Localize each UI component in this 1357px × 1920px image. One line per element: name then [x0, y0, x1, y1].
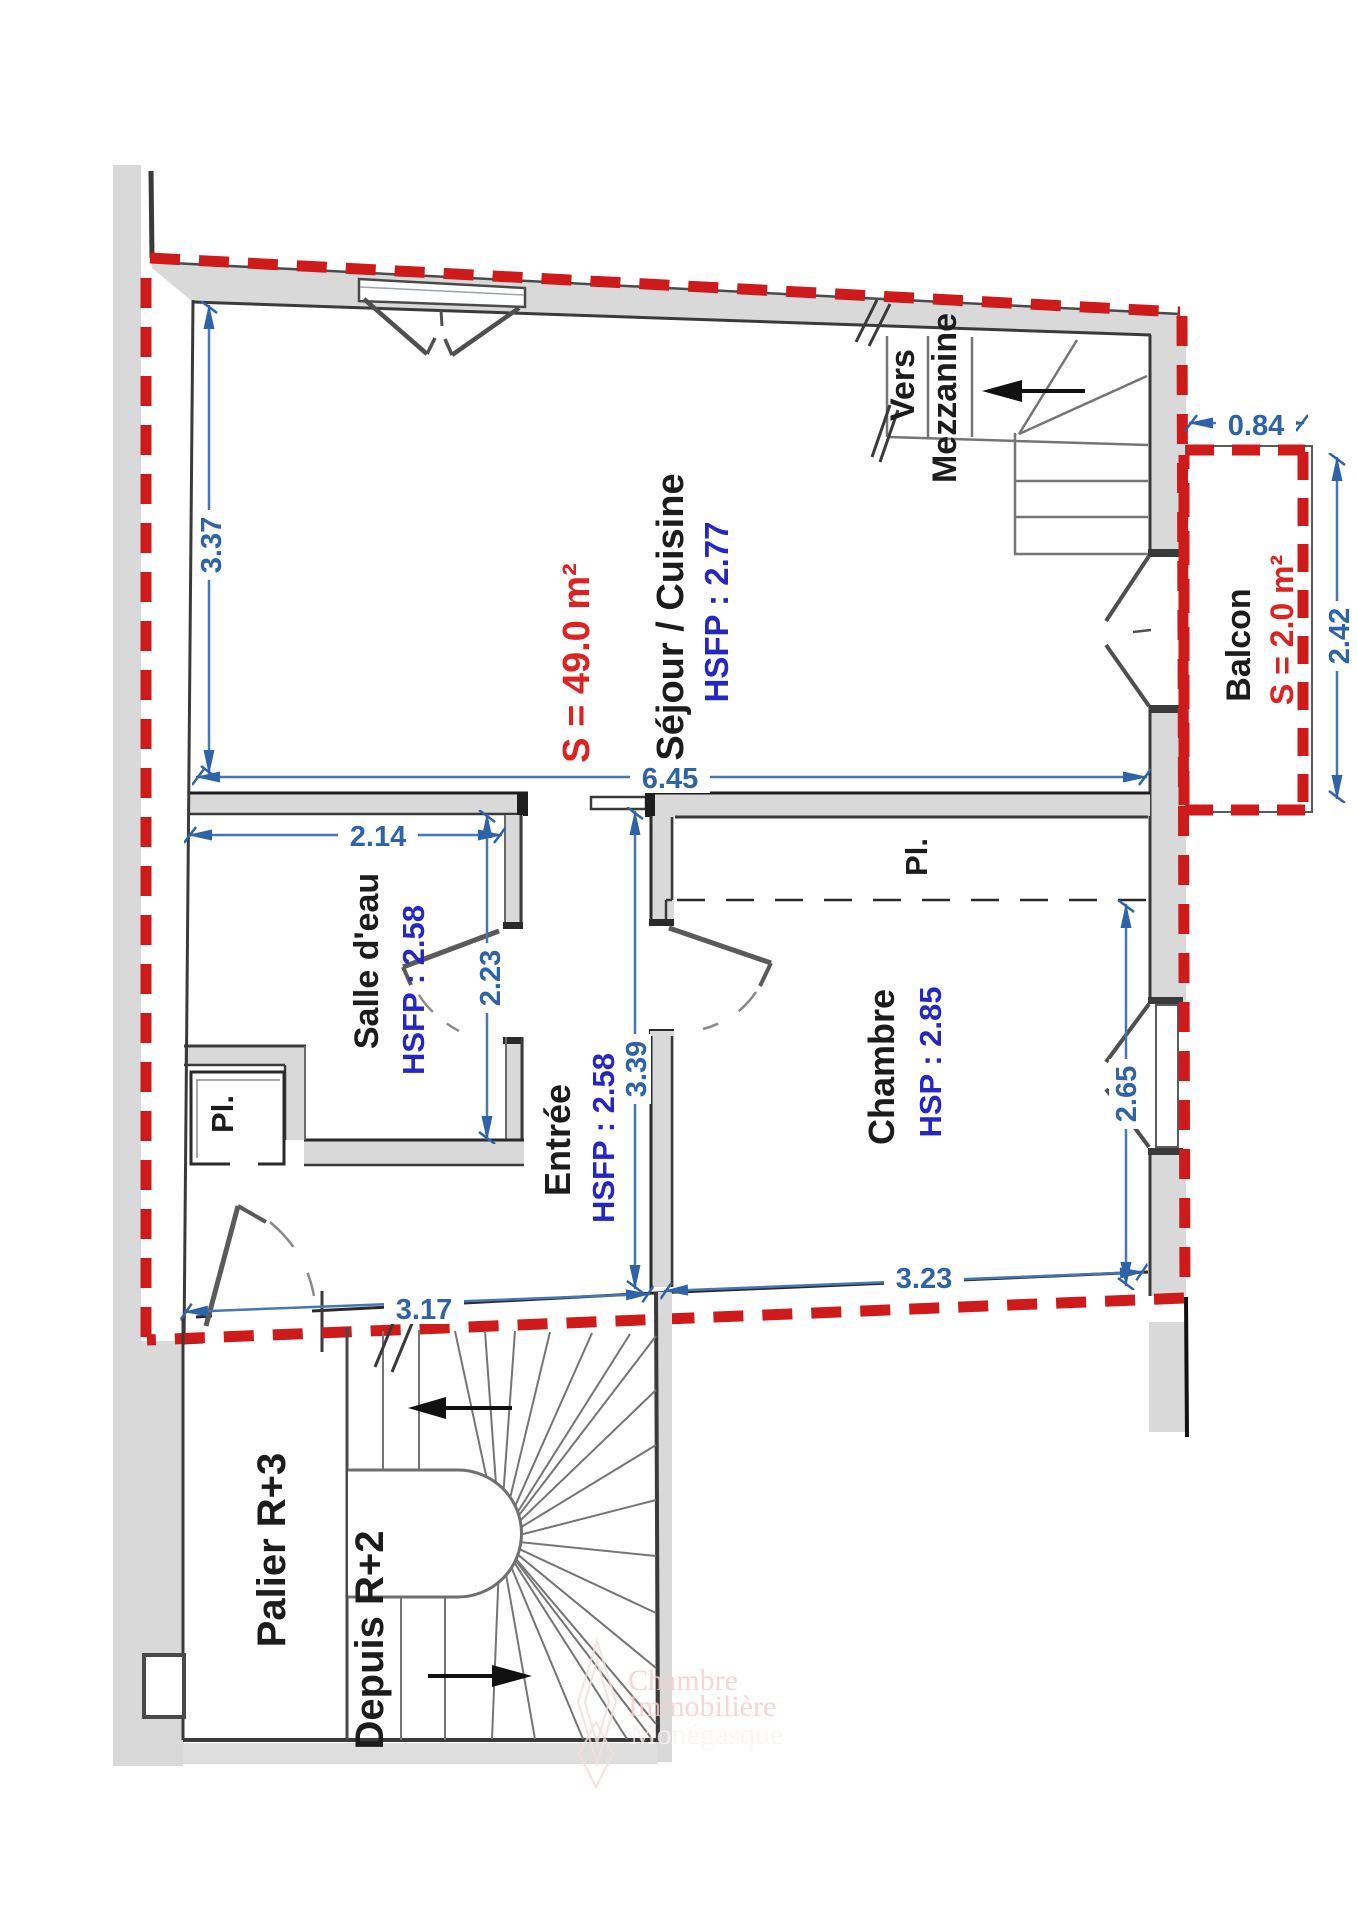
- svg-text:3.23: 3.23: [896, 1263, 952, 1295]
- svg-text:Monégasque: Monégasque: [630, 1718, 783, 1751]
- svg-text:2.65: 2.65: [1111, 1066, 1143, 1122]
- svg-text:2.42: 2.42: [1324, 608, 1356, 664]
- svg-text:2.14: 2.14: [350, 821, 406, 853]
- svg-text:Pl.: Pl.: [205, 1095, 240, 1133]
- svg-text:Séjour / Cuisine: Séjour / Cuisine: [650, 473, 692, 760]
- svg-text:Pl.: Pl.: [899, 838, 934, 876]
- svg-text:Mezzanine: Mezzanine: [926, 313, 964, 483]
- svg-text:0.84: 0.84: [1228, 410, 1284, 442]
- svg-text:Entrée: Entrée: [537, 1084, 578, 1196]
- svg-text:Chambre: Chambre: [861, 989, 902, 1145]
- svg-text:6.45: 6.45: [642, 763, 698, 795]
- svg-text:HSFP : 2.58: HSFP : 2.58: [396, 905, 431, 1075]
- svg-text:HSFP : 2.77: HSFP : 2.77: [698, 522, 735, 703]
- svg-text:3.39: 3.39: [621, 1041, 653, 1097]
- svg-text:Salle d'eau: Salle d'eau: [348, 873, 386, 1049]
- svg-text:S = 2.0 m²: S = 2.0 m²: [1264, 555, 1300, 705]
- svg-text:2.23: 2.23: [475, 950, 507, 1006]
- svg-text:Depuis R+2: Depuis R+2: [348, 1531, 392, 1750]
- svg-text:Vers: Vers: [884, 349, 922, 421]
- svg-text:3.37: 3.37: [196, 517, 228, 573]
- svg-text:Palier R+3: Palier R+3: [250, 1453, 294, 1648]
- svg-text:HSP : 2.85: HSP : 2.85: [913, 986, 948, 1137]
- svg-text:HSFP : 2.58: HSFP : 2.58: [586, 1053, 621, 1223]
- svg-text:Balcon: Balcon: [1220, 588, 1258, 701]
- svg-text:S = 49.0 m²: S = 49.0 m²: [556, 563, 598, 763]
- svg-text:3.17: 3.17: [396, 1294, 452, 1326]
